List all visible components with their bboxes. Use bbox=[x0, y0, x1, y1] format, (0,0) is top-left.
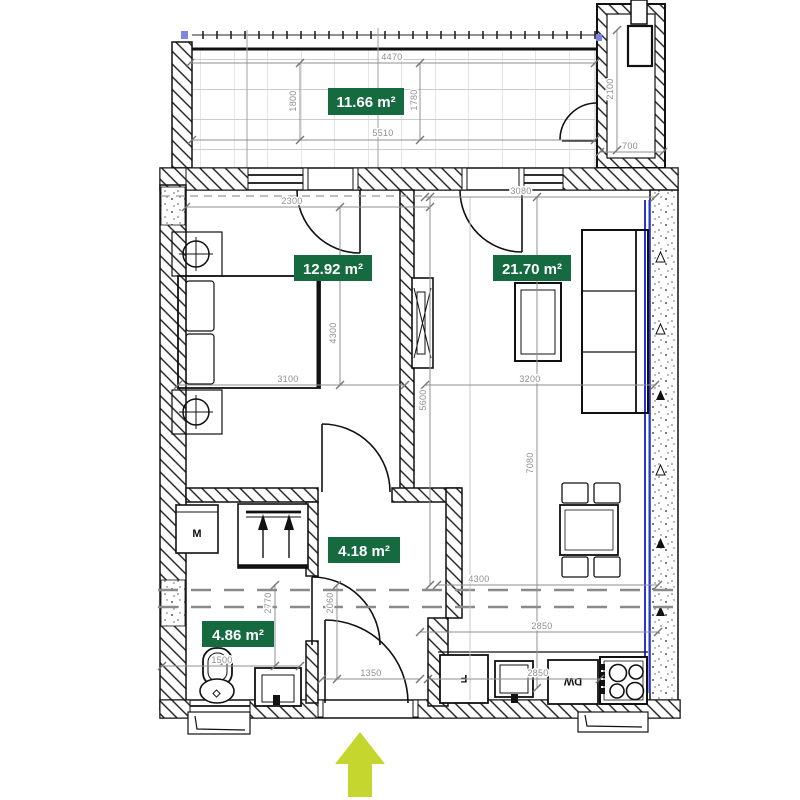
wall-segment bbox=[186, 168, 248, 190]
chair bbox=[562, 483, 588, 503]
balcony-left-wall bbox=[172, 42, 192, 168]
floorplan-page: F DW M bbox=[0, 0, 800, 800]
dim-text: 2300 bbox=[281, 196, 302, 206]
dim-text: 7080 bbox=[525, 452, 535, 473]
living-area-label: 21.70 m² bbox=[502, 261, 562, 278]
faucet-icon bbox=[511, 694, 518, 703]
dim-text: 2770 bbox=[263, 592, 273, 613]
hall-living-wall bbox=[446, 488, 462, 618]
dishwasher-label: DW bbox=[563, 675, 582, 687]
bath-hall-wall-lower bbox=[306, 641, 318, 703]
shaft-top-notch bbox=[631, 0, 647, 24]
wall-stipple-block bbox=[161, 187, 185, 225]
dining-table bbox=[560, 505, 618, 555]
fridge-label: F bbox=[460, 672, 467, 684]
chair bbox=[594, 557, 620, 577]
dim-text: 5600 bbox=[418, 389, 428, 410]
dim-text: 700 bbox=[622, 141, 638, 151]
door-jamb bbox=[303, 168, 308, 190]
dim-text: 4300 bbox=[468, 574, 489, 584]
wall-stipple-block bbox=[161, 580, 185, 626]
bath-door-swing bbox=[312, 577, 380, 645]
left-wall bbox=[160, 185, 186, 710]
balcony-railing-posts bbox=[192, 31, 610, 40]
hob-knob bbox=[601, 672, 605, 678]
shaft-duct bbox=[628, 26, 652, 66]
dim-text: 5510 bbox=[372, 128, 393, 138]
washer-label: M bbox=[192, 528, 201, 540]
dim-text: 2060 bbox=[325, 592, 335, 613]
dining-table-inner bbox=[565, 510, 613, 550]
hall-area-label: 4.18 m² bbox=[338, 543, 390, 560]
chair bbox=[562, 557, 588, 577]
kitchen: F DW bbox=[438, 652, 648, 704]
dim-text: 1350 bbox=[360, 668, 381, 678]
dim-text: 1500 bbox=[211, 655, 232, 665]
wall-segment bbox=[160, 700, 190, 718]
door-jamb bbox=[353, 168, 358, 190]
pillow bbox=[186, 281, 214, 331]
faucet-icon bbox=[273, 695, 280, 705]
balcony-area-label: 11.66 m² bbox=[336, 94, 395, 111]
wall-segment bbox=[358, 168, 464, 190]
living-balcony-door-swing bbox=[460, 190, 522, 252]
coffee-table-inner bbox=[521, 290, 555, 354]
door-jamb bbox=[462, 168, 467, 190]
bed bbox=[178, 276, 320, 388]
dim-text: 3080 bbox=[510, 186, 531, 196]
walls bbox=[160, 168, 680, 734]
entrance-arrow-icon bbox=[335, 732, 385, 797]
bedroom-bath-wall bbox=[186, 488, 318, 502]
hob-knob bbox=[601, 664, 605, 670]
door-jamb bbox=[413, 700, 418, 717]
window-sill bbox=[188, 712, 250, 734]
hob-knob bbox=[601, 688, 605, 694]
floorplan-drawing: F DW M bbox=[0, 0, 800, 800]
dim-text: 2100 bbox=[605, 78, 615, 99]
window-marker bbox=[181, 31, 188, 39]
pillow bbox=[186, 334, 214, 384]
bedroom-hall-door-swing bbox=[322, 424, 390, 492]
bedroom-area-label: 12.92 m² bbox=[303, 261, 363, 278]
dim-text: 3200 bbox=[519, 374, 540, 384]
shower-cabin bbox=[238, 504, 308, 568]
coffee-table bbox=[515, 283, 561, 361]
dim-text: 4470 bbox=[381, 52, 402, 62]
dim-text: 1780 bbox=[409, 89, 419, 110]
dim-text: 1800 bbox=[288, 90, 298, 111]
bath-area-label: 4.86 m² bbox=[212, 627, 264, 644]
bathroom-fixtures: M bbox=[176, 504, 308, 706]
dim-text: 2850 bbox=[531, 621, 552, 631]
sofa bbox=[582, 230, 648, 413]
window-marker bbox=[596, 34, 602, 41]
bedroom-balcony-door-swing bbox=[297, 190, 360, 253]
window-sill bbox=[578, 712, 648, 732]
chair bbox=[594, 483, 620, 503]
dim-text: 4300 bbox=[328, 322, 338, 343]
hob-knob bbox=[601, 680, 605, 686]
dim-text: 2850 bbox=[527, 668, 548, 678]
dim-text: 3100 bbox=[277, 374, 298, 384]
wall-segment bbox=[563, 168, 678, 190]
living-furniture bbox=[515, 230, 648, 577]
